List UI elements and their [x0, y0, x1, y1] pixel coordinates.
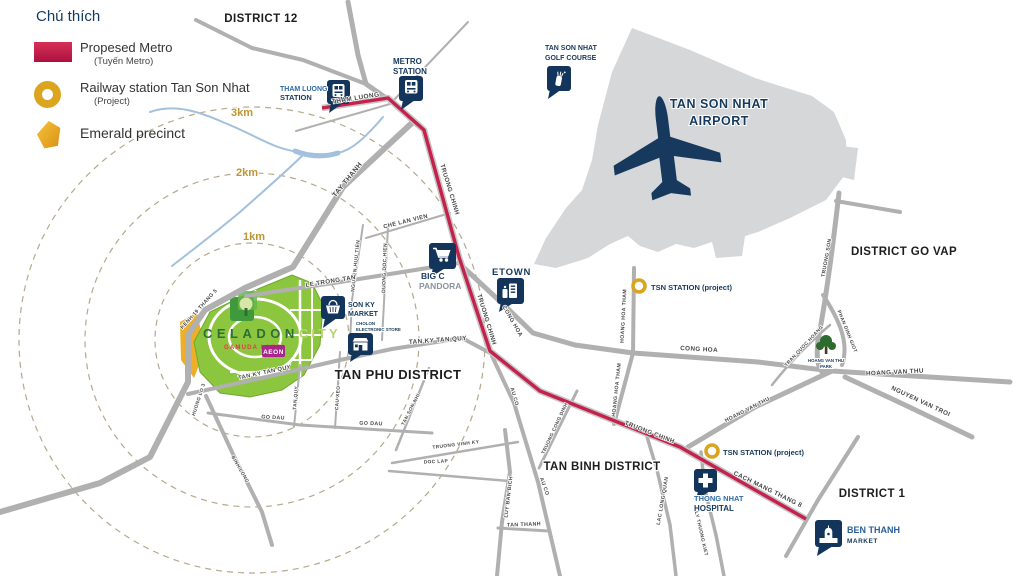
road-tan-thanh: [498, 528, 549, 531]
tan-phu-district-label: TAN PHU DISTRICT: [335, 367, 462, 382]
road-label-tan-quy: TAN QUY: [292, 385, 300, 410]
district-go-vap-label: DISTRICT GO VAP: [851, 246, 957, 258]
map-page: TAN SON NHAT AIRPORT CELADON CITY GAMUDA…: [0, 0, 1024, 576]
tsn-station-1-label: TSN STATION (project): [651, 283, 732, 292]
road-label-tay-thanh: TAY THANH: [332, 161, 364, 199]
km-label-1: 1km: [243, 231, 265, 243]
golf-label-1: TAN SON NHAT: [545, 45, 598, 52]
road-district12-top: [348, 2, 392, 102]
road-label-cach-mang-thang-8: CACH MANG THANG 8: [732, 470, 803, 509]
metro-station-badge[interactable]: [399, 76, 423, 110]
district-1-label: DISTRICT 1: [839, 488, 906, 500]
railway-station-swatch: [34, 81, 61, 108]
road-label-duong-doc-hien: DUONG DOC HIEN: [381, 243, 389, 293]
tree-icon: [825, 347, 828, 354]
sonky-label-2: MARKET: [348, 311, 379, 318]
road-label-binh-long: BINH LONG: [230, 455, 250, 484]
legend-item-metro: Propesed Metro (Tuyến Metro): [34, 41, 304, 68]
sonky-market-badge[interactable]: [321, 296, 345, 328]
airport-area: TAN SON NHAT AIRPORT: [534, 28, 858, 268]
cholon-label-2: ELECTRONIC STORE: [356, 327, 401, 332]
bigc-label-2: PANDORA: [419, 281, 461, 291]
road-label-go-dau: GO DAU: [261, 414, 285, 421]
hospital-label-1: THONG NHAT: [694, 494, 744, 503]
road-doc-lap: [389, 471, 509, 481]
park-label-1: HOANG VAN THU: [808, 358, 844, 363]
celadon-name-2: CITY: [299, 326, 341, 341]
bigc-label-1: BIG C: [421, 271, 445, 281]
train-icon: [405, 80, 418, 94]
golf-label-2: GOLF COURSE: [545, 55, 597, 62]
road-label-go-dau: GO DAU: [359, 421, 383, 428]
road-label-ly-thuong-kiet: LY THUONG KIET: [693, 511, 709, 557]
tsn-station-1-marker[interactable]: [633, 280, 645, 292]
benthanh-badge[interactable]: [815, 520, 842, 556]
road-label-nguyen-huu-tien: NGUYEN HUU TIEN: [350, 240, 361, 293]
road-label-hoang-van-thu: HOANG VAN THU: [724, 396, 771, 424]
road-label-huong-lo-3: HUONG LO 3: [191, 383, 207, 417]
legend-metro-sublabel: (Tuyến Metro): [94, 57, 173, 68]
road-label-doc-lap: DOC LAP: [424, 458, 449, 465]
km-label-2: 2km: [236, 167, 258, 179]
road-hoang-van-thu-west: [688, 371, 832, 447]
legend-railway-label: Railway station Tan Son Nhat: [80, 80, 250, 95]
road-cong-hoa: [462, 266, 1010, 382]
road-label-tan-thanh: TAN THANH: [507, 521, 541, 528]
legend-item-emerald: Emerald precinct: [34, 121, 304, 148]
tsn-station-2-label: TSN STATION (project): [723, 448, 804, 457]
legend-metro-label: Propesed Metro: [80, 40, 173, 55]
road-label-truong-cong-dinh: TRUONG CONG DINH: [541, 402, 570, 455]
benthanh-label-2: MARKET: [847, 538, 878, 545]
benthanh-label-1: BEN THANH: [847, 525, 900, 535]
road-go-dau: [208, 413, 432, 433]
legend: Chú thích Propesed Metro (Tuyến Metro) R…: [34, 8, 304, 161]
road-label-phan-dinh-giot: PHAN DINH GIOT: [836, 309, 859, 353]
aeon-label: AEON: [263, 349, 284, 356]
road-go-vap-stub: [836, 201, 900, 212]
legend-title: Chú thích: [36, 8, 304, 25]
airport-label-2: AIRPORT: [689, 114, 749, 128]
store-icon: [353, 338, 369, 351]
road-label-hoang-hoa-tham: HOANG HOA THAM: [620, 289, 629, 343]
metro-line-swatch: [34, 42, 72, 62]
airport-polygon-east: [838, 146, 858, 180]
metro-station-label-1: METRO: [393, 57, 422, 66]
train-icon: [333, 84, 345, 97]
road-label-luy-ban-bich: LUY BAN BICH: [503, 476, 514, 518]
road-nguyen-van-troi: [845, 377, 972, 437]
legend-item-railway: Railway station Tan Son Nhat (Project): [34, 81, 304, 108]
road-che-lan-vien: [366, 213, 450, 238]
celadon-name: CELADON: [203, 326, 299, 341]
hospital-label-2: HOSPITAL: [694, 504, 734, 513]
road-label-le-trong-tan: LE TRONG TAN: [305, 274, 356, 289]
road-label-tan-ky-tan-quy: TAN KY TAN QUY: [409, 335, 468, 346]
road-label-cau-xeo: CAU XEO: [334, 385, 342, 410]
road-label-cong-hoa: CONG HOA: [680, 345, 718, 354]
legend-railway-sublabel: (Project): [94, 97, 250, 108]
emerald-precinct-swatch: [36, 120, 63, 149]
airport-label-1: TAN SON NHAT: [670, 97, 769, 111]
metro-station-label-2: STATION: [393, 67, 427, 76]
legend-emerald-label: Emerald precinct: [80, 125, 185, 141]
park-label-2: PARK: [820, 364, 833, 369]
etown-label: ETOWN: [492, 267, 531, 278]
tan-binh-district-label: TAN BINH DISTRICT: [543, 461, 660, 473]
tsn-station-2-marker[interactable]: [706, 445, 718, 457]
golf-course-badge[interactable]: [547, 66, 571, 99]
aeon-badge[interactable]: AEON: [262, 345, 285, 357]
cholon-label-1: CHOLON: [356, 321, 375, 326]
sonky-label-1: SON KY: [348, 302, 375, 309]
